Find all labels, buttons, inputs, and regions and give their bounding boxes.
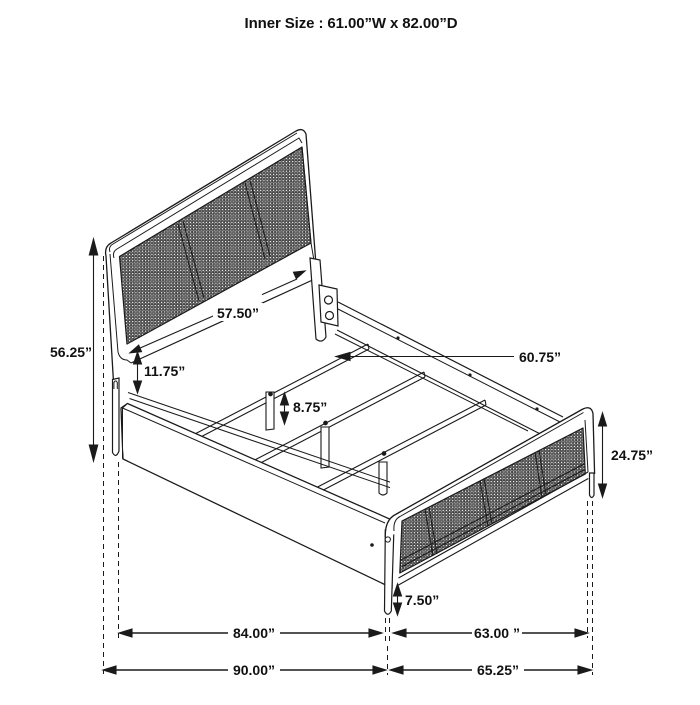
svg-text:90.00”: 90.00” [233,662,275,678]
svg-text:57.50”: 57.50” [217,305,259,321]
svg-text:63.00 ”: 63.00 ” [474,625,520,641]
svg-text:7.50”: 7.50” [405,592,439,608]
svg-text:84.00”: 84.00” [233,625,275,641]
svg-text:8.75”: 8.75” [293,399,327,415]
svg-text:60.75”: 60.75” [519,349,561,365]
svg-text:65.25”: 65.25” [477,662,519,678]
svg-text:Inner Size : 61.00”W x 82.00”D: Inner Size : 61.00”W x 82.00”D [245,15,458,32]
svg-text:56.25”: 56.25” [50,344,92,360]
svg-text:24.75”: 24.75” [611,447,653,463]
svg-text:11.75”: 11.75” [144,363,185,379]
